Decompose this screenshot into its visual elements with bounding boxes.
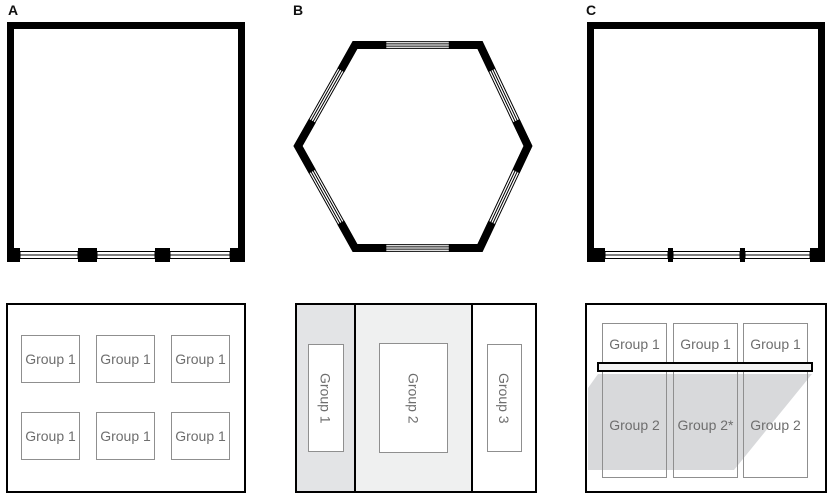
group-box: Group 3 — [487, 344, 522, 452]
floorplan-c-square — [587, 22, 825, 264]
panel-label-b: B — [293, 3, 303, 17]
group-box: Group 1 — [673, 323, 738, 365]
panel-b-zone-3: Group 3 — [473, 305, 535, 491]
panel-b-zone-1: Group 1 — [297, 305, 356, 491]
group-box: Group 2 — [379, 343, 448, 453]
group-box: Group 1 — [602, 323, 667, 365]
group-box: Group 1 — [171, 335, 230, 383]
group-box: Group 1 — [21, 412, 80, 460]
group-box: Group 1 — [96, 412, 155, 460]
horizontal-bar — [597, 362, 813, 372]
panel-label-a: A — [8, 3, 18, 17]
panel-b-zone-2: Group 2 — [356, 305, 473, 491]
group-box: Group 1 — [96, 335, 155, 383]
walls — [591, 26, 822, 253]
bottom-windows — [20, 252, 230, 259]
group-box: Group 1 — [171, 412, 230, 460]
panel-c-layout-rect: Group 1 Group 1 Group 1 Group 2 Group 2*… — [585, 303, 827, 493]
panel-a-box-grid: Group 1 Group 1 Group 1 Group 1 Group 1 … — [21, 335, 230, 460]
group-box: Group 2 — [602, 371, 667, 478]
panel-a-layout-rect: Group 1 Group 1 Group 1 Group 1 Group 1 … — [6, 303, 246, 493]
panel-b-layout-rect: Group 1 Group 2 Group 3 — [295, 303, 537, 493]
group-box: Group 1 — [743, 323, 808, 365]
hexagon-window-walls — [294, 42, 532, 252]
figure-canvas: A Group 1 Group 1 Group 1 Group 1 Group … — [0, 0, 830, 501]
group-box: Group 1 — [308, 344, 344, 452]
group-box: Group 2* — [673, 371, 738, 478]
group-box: Group 2 — [743, 371, 808, 478]
bottom-windows — [605, 252, 810, 259]
group-box: Group 1 — [21, 335, 80, 383]
floorplan-b-hexagon — [290, 30, 536, 260]
walls — [11, 26, 242, 253]
panel-label-c: C — [586, 3, 596, 17]
floorplan-a-square — [7, 22, 245, 264]
